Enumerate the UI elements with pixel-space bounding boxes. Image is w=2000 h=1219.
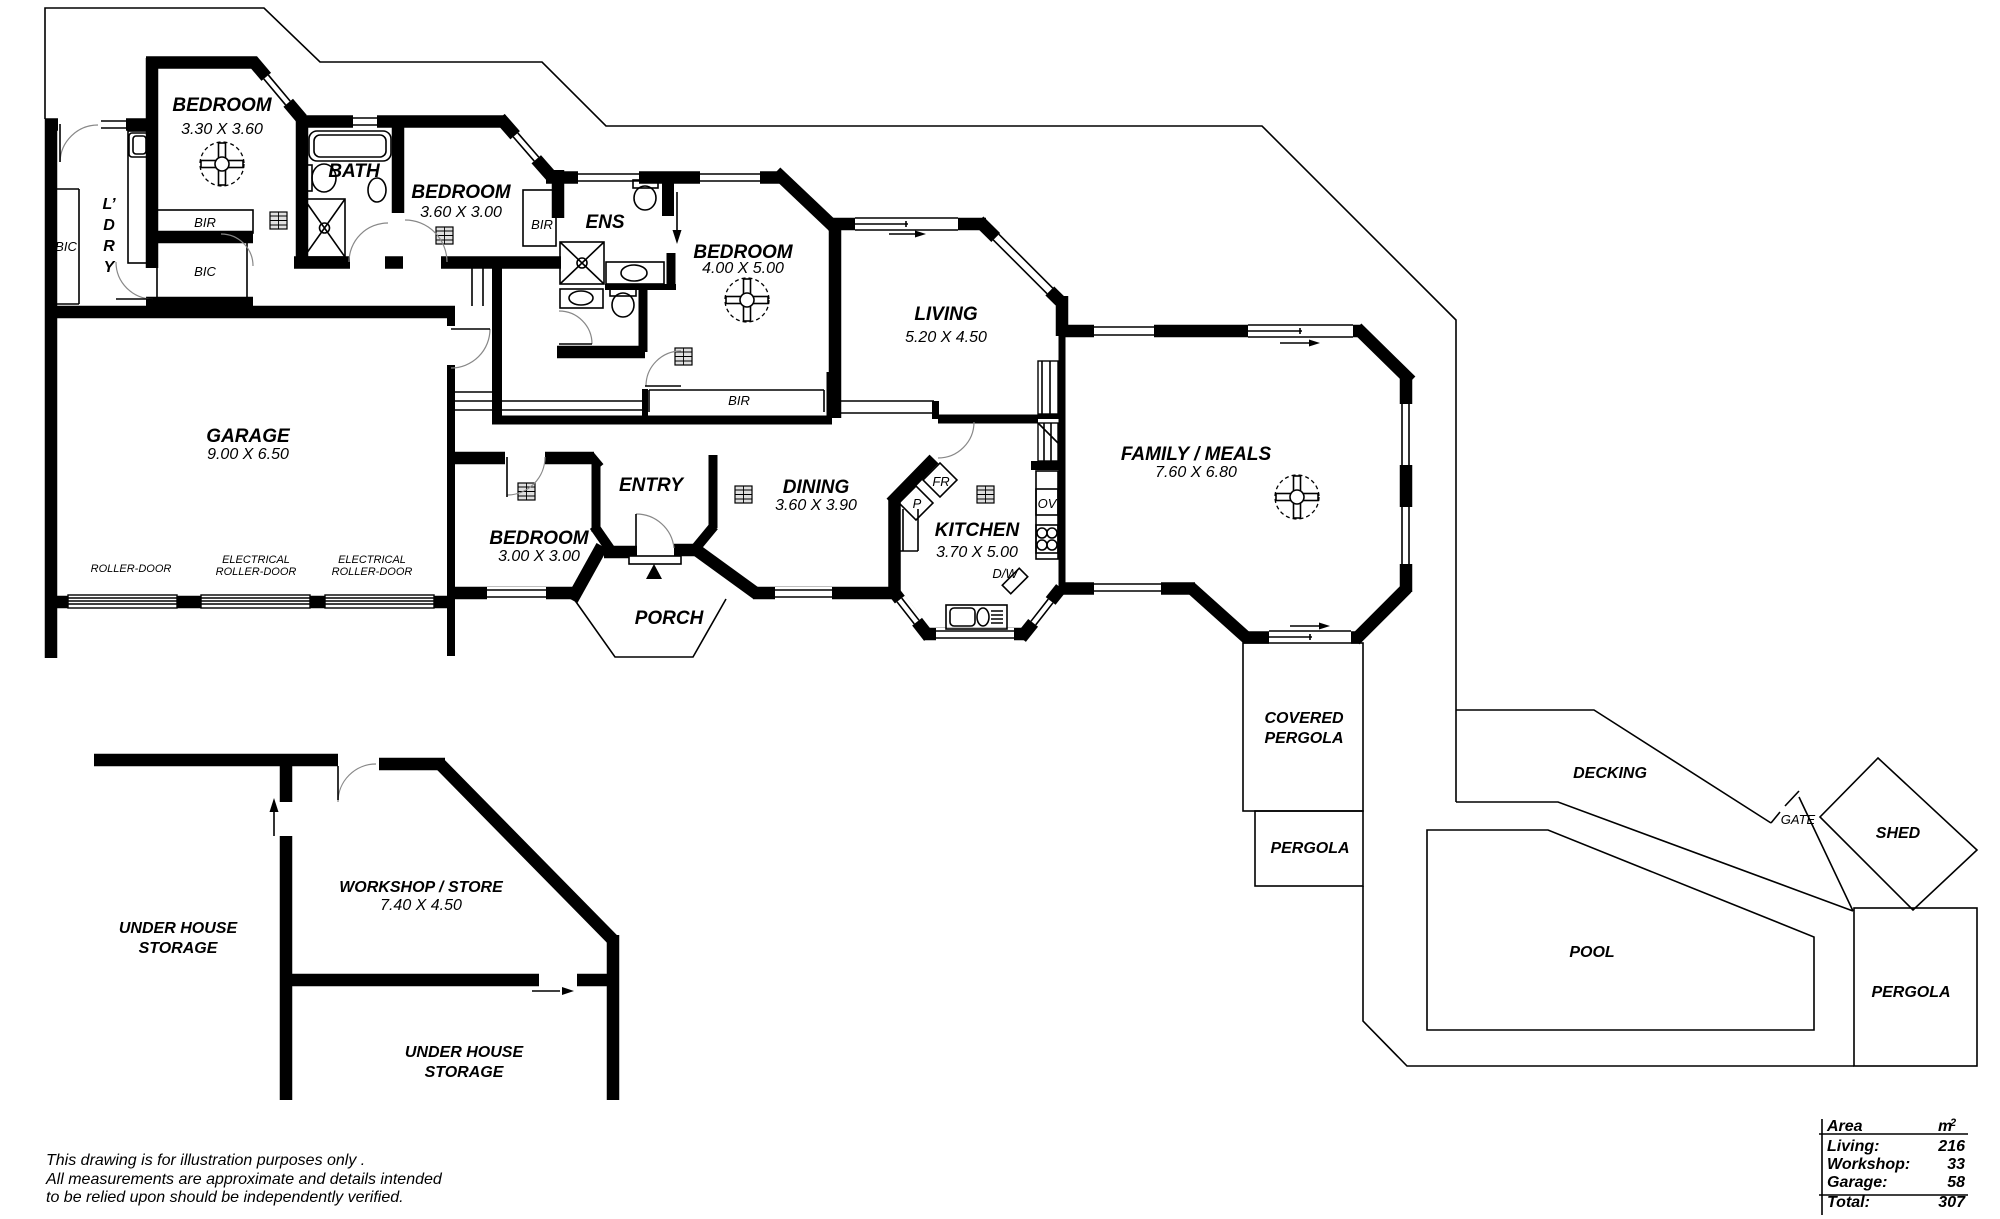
- svg-text:BIR: BIR: [728, 393, 750, 408]
- svg-text:FAMILY / MEALS: FAMILY / MEALS: [1121, 444, 1272, 465]
- svg-text:L’: L’: [102, 196, 116, 213]
- svg-text:D: D: [103, 217, 115, 234]
- svg-text:BEDROOM: BEDROOM: [172, 95, 272, 116]
- svg-text:ROLLER-DOOR: ROLLER-DOOR: [216, 566, 297, 578]
- svg-text:UNDER HOUSE: UNDER HOUSE: [119, 920, 239, 937]
- svg-text:Y: Y: [104, 259, 116, 276]
- svg-text:P: P: [913, 496, 922, 511]
- svg-text:OV: OV: [1038, 496, 1058, 511]
- svg-text:5.20 X 4.50: 5.20 X 4.50: [905, 329, 987, 346]
- svg-text:PERGOLA: PERGOLA: [1270, 840, 1349, 857]
- svg-text:GATE: GATE: [1781, 812, 1816, 827]
- svg-text:KITCHEN: KITCHEN: [935, 520, 1021, 541]
- svg-text:Area: Area: [1826, 1118, 1863, 1135]
- svg-text:ENS: ENS: [585, 212, 624, 233]
- svg-text:BEDROOM: BEDROOM: [489, 528, 589, 549]
- svg-text:4.00 X 5.00: 4.00 X 5.00: [702, 260, 784, 277]
- svg-text:SHED: SHED: [1876, 825, 1921, 842]
- svg-text:Total:: Total:: [1827, 1194, 1870, 1211]
- svg-text:BIR: BIR: [194, 215, 216, 230]
- svg-text:UNDER HOUSE: UNDER HOUSE: [405, 1044, 525, 1061]
- svg-text:3.60 X 3.90: 3.60 X 3.90: [775, 497, 857, 514]
- svg-text:Workshop:: Workshop:: [1827, 1156, 1910, 1173]
- svg-text:7.40 X 4.50: 7.40 X 4.50: [380, 897, 462, 914]
- svg-text:PERGOLA: PERGOLA: [1264, 730, 1343, 747]
- svg-text:3.00 X 3.00: 3.00 X 3.00: [498, 548, 580, 565]
- svg-text:BIC: BIC: [55, 239, 77, 254]
- svg-text:This drawing is for illustrati: This drawing is for illustration purpose…: [46, 1152, 365, 1169]
- svg-text:LIVING: LIVING: [914, 304, 978, 325]
- svg-text:DECKING: DECKING: [1573, 765, 1647, 782]
- svg-text:COVERED: COVERED: [1264, 710, 1344, 727]
- svg-text:216: 216: [1937, 1138, 1965, 1155]
- svg-text:Living:: Living:: [1827, 1138, 1879, 1155]
- svg-text:3.60 X 3.00: 3.60 X 3.00: [420, 204, 502, 221]
- svg-text:WORKSHOP / STORE: WORKSHOP / STORE: [339, 879, 504, 896]
- svg-text:58: 58: [1947, 1174, 1965, 1191]
- svg-text:BIC: BIC: [194, 264, 216, 279]
- svg-text:STORAGE: STORAGE: [425, 1064, 505, 1081]
- svg-text:GARAGE: GARAGE: [206, 426, 291, 447]
- svg-text:7.60 X 6.80: 7.60 X 6.80: [1155, 464, 1237, 481]
- svg-text:All measurements are approxima: All measurements are approximate and det…: [45, 1171, 443, 1188]
- svg-text:9.00 X 6.50: 9.00 X 6.50: [207, 446, 289, 463]
- svg-text:PERGOLA: PERGOLA: [1871, 984, 1950, 1001]
- svg-text:307: 307: [1938, 1194, 1966, 1211]
- svg-text:PORCH: PORCH: [635, 608, 705, 629]
- svg-text:3.70 X 5.00: 3.70 X 5.00: [936, 544, 1018, 561]
- svg-text:ROLLER-DOOR: ROLLER-DOOR: [91, 563, 172, 575]
- svg-text:ELECTRICAL: ELECTRICAL: [338, 554, 406, 566]
- svg-text:ELECTRICAL: ELECTRICAL: [222, 554, 290, 566]
- svg-text:R: R: [103, 238, 115, 255]
- svg-text:BATH: BATH: [328, 161, 381, 182]
- svg-text:ENTRY: ENTRY: [619, 475, 685, 496]
- svg-text:2: 2: [1949, 1117, 1956, 1129]
- svg-text:BIR: BIR: [531, 217, 553, 232]
- svg-text:D/W: D/W: [992, 566, 1019, 581]
- svg-text:3.30 X 3.60: 3.30 X 3.60: [181, 121, 263, 138]
- svg-text:DINING: DINING: [783, 477, 850, 498]
- svg-text:FR: FR: [932, 474, 949, 489]
- svg-text:to be relied upon should be in: to be relied upon should be independentl…: [46, 1189, 404, 1206]
- svg-text:Garage:: Garage:: [1827, 1174, 1887, 1191]
- svg-text:33: 33: [1947, 1156, 1965, 1173]
- svg-text:ROLLER-DOOR: ROLLER-DOOR: [332, 566, 413, 578]
- svg-text:STORAGE: STORAGE: [139, 940, 219, 957]
- svg-text:POOL: POOL: [1569, 944, 1614, 961]
- svg-text:BEDROOM: BEDROOM: [411, 182, 511, 203]
